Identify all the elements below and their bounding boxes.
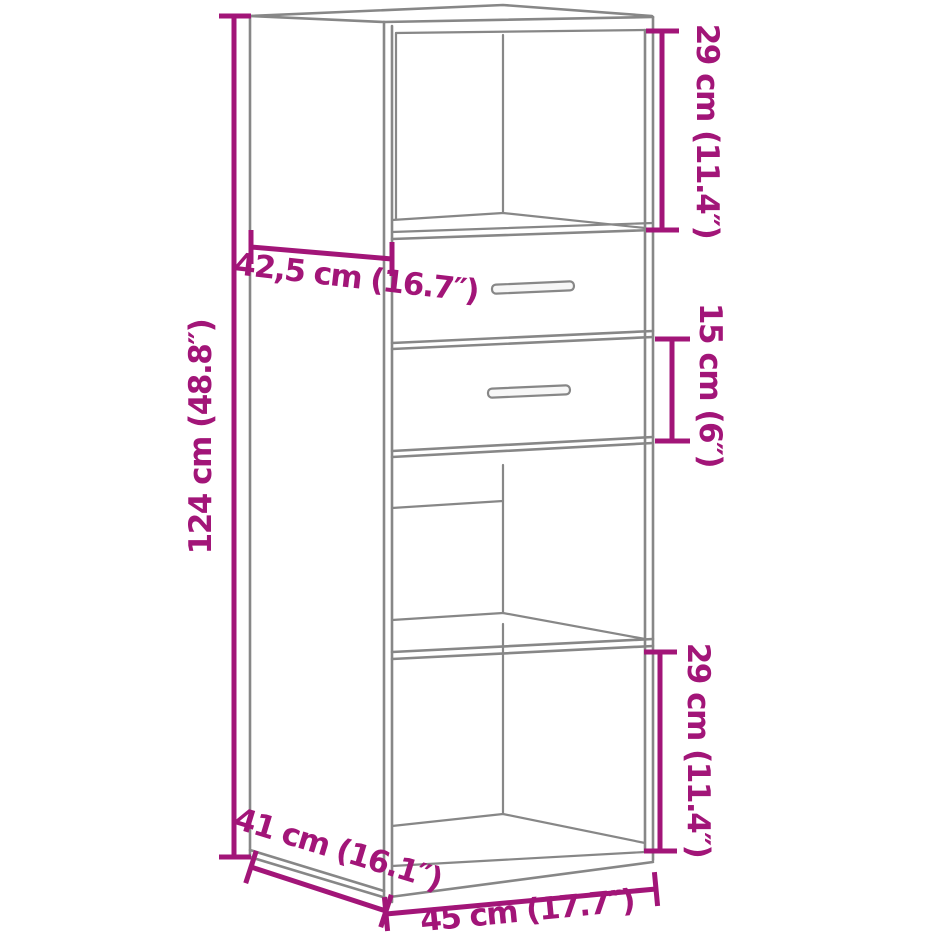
dim-drawer-height-label: 15 cm (6″) (692, 303, 728, 467)
drawer-2-handle (488, 385, 570, 398)
dim-overall-height (219, 16, 251, 857)
dim-upper-compartment-height (646, 31, 679, 230)
diagram-canvas: 29 cm (11.4″) 42,5 cm (16.7″) 124 cm (48… (0, 0, 947, 947)
cabinet-drawing (250, 5, 653, 902)
drawer-2 (392, 385, 653, 457)
middle-shelf (392, 613, 653, 659)
dimension-diagram: 29 cm (11.4″) 42,5 cm (16.7″) 124 cm (48… (0, 0, 947, 947)
dim-width-label: 45 cm (17.7″) (419, 883, 636, 939)
middle-compartment (392, 465, 503, 613)
bottom-compartment (392, 624, 645, 866)
dim-overall-height-label: 124 cm (48.8″) (183, 320, 219, 555)
dim-drawer-height (655, 339, 690, 441)
dim-upper-compartment-height-label: 29 cm (11.4″) (689, 24, 725, 239)
dim-lower-compartment-height-label: 29 cm (11.4″) (680, 643, 716, 858)
drawer-1-handle (492, 281, 574, 294)
dim-lower-compartment-height (644, 652, 677, 851)
top-compartment (392, 30, 653, 232)
